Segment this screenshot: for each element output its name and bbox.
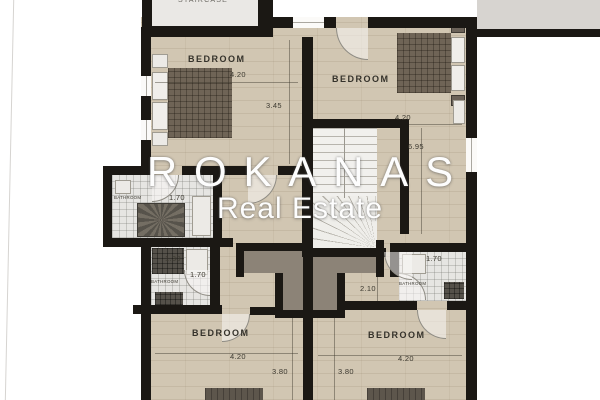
bath-mat xyxy=(444,282,464,299)
dim-line xyxy=(292,316,293,400)
wall xyxy=(345,301,417,310)
wall xyxy=(302,248,386,257)
dim-value: 3.80 xyxy=(338,367,354,376)
window xyxy=(293,17,324,28)
dim-value: 1.30 xyxy=(165,254,181,263)
dim-value: 3.45 xyxy=(266,101,282,110)
wall xyxy=(447,301,466,310)
staircase-label: STAIRCASE xyxy=(178,0,228,4)
bathroom-right-label: BATHROOM xyxy=(399,281,426,286)
adjacent-room xyxy=(477,0,600,29)
wall xyxy=(236,243,302,251)
wall xyxy=(303,243,313,400)
desk xyxy=(453,100,465,124)
bedroom-top-right-label: BEDROOM xyxy=(332,74,390,84)
pillow xyxy=(451,65,465,91)
window xyxy=(141,76,151,96)
dim-value: 4.20 xyxy=(395,113,411,122)
wall xyxy=(141,247,151,400)
bed-bottom-left xyxy=(205,388,263,400)
wall xyxy=(368,17,466,28)
wall xyxy=(390,243,466,252)
wall xyxy=(133,305,222,314)
bed-top-right xyxy=(397,33,451,93)
dim-value: 1.70 xyxy=(190,270,206,279)
window xyxy=(141,120,151,140)
floor-plan: STAIRCASE BEDROOM 4.20 3.45 BEDROOM 4.20… xyxy=(0,0,600,400)
bedroom-bottom-left-label: BEDROOM xyxy=(192,328,250,338)
pillow xyxy=(451,37,465,63)
bed-bottom-right xyxy=(367,388,425,400)
wall xyxy=(141,27,151,168)
dim-value: 4.20 xyxy=(230,70,246,79)
dim-value: 3.80 xyxy=(272,367,288,376)
wall xyxy=(250,307,277,315)
wall xyxy=(210,240,220,307)
wall xyxy=(236,243,244,277)
wall xyxy=(273,17,293,28)
dim-line xyxy=(334,312,335,400)
nightstand xyxy=(152,132,168,146)
dim-value: 4.20 xyxy=(230,352,246,361)
wall xyxy=(142,26,273,37)
staircase-room xyxy=(142,0,273,27)
wall xyxy=(142,0,152,28)
pillow xyxy=(152,102,168,130)
bed-top-left xyxy=(168,68,232,138)
bedroom-top-left-label: BEDROOM xyxy=(188,54,246,64)
bath-mat xyxy=(155,292,183,305)
watermark-subtitle: Real Estate xyxy=(0,192,600,226)
dim-line xyxy=(318,355,462,356)
bathroom-lower-left-label: BATHROOM xyxy=(151,279,178,284)
wall xyxy=(376,240,384,277)
dim-line xyxy=(155,353,298,354)
nightstand xyxy=(152,54,168,68)
dim-line xyxy=(289,40,290,164)
wall xyxy=(477,29,600,37)
bedroom-bottom-right-label: BEDROOM xyxy=(368,330,426,340)
wall xyxy=(324,17,336,28)
dim-line xyxy=(155,82,298,83)
watermark-title: ROKANAS xyxy=(0,148,600,196)
dim-value: 4.20 xyxy=(398,354,414,363)
dim-value: 2.10 xyxy=(360,284,376,293)
pillow xyxy=(152,72,168,100)
wall xyxy=(258,0,273,28)
dim-value: 1.70 xyxy=(426,254,442,263)
